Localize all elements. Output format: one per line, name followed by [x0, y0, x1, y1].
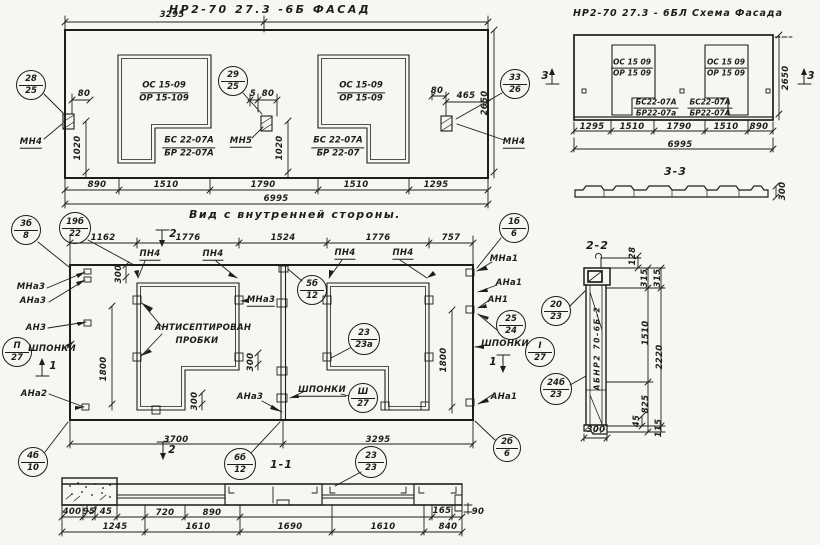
dim-sec22-825: 825: [642, 395, 651, 414]
dim-sec11-840: 840: [439, 523, 458, 532]
dim-fasad-80a: 80: [78, 90, 90, 99]
label-mn4-right: МН4: [503, 138, 525, 149]
frac-bottom: ОР 15-09: [339, 93, 383, 104]
dim-vid-1800-left: 1800: [100, 357, 109, 382]
dim-fasad-1020a: 1020: [74, 136, 83, 161]
callout-bottom: 27: [3, 353, 31, 363]
label-an1: АН1: [488, 296, 509, 305]
frac-bottom: БР 22-07: [317, 148, 360, 159]
dim-vid-300c: 300: [191, 392, 200, 411]
callout-33-26: 3326: [500, 69, 530, 99]
label-pn4-c: ПН4: [334, 249, 355, 260]
dim-fasad-1020b: 1020: [276, 136, 285, 161]
frac-top: ОС 15-09: [337, 80, 385, 93]
callout-top: 20: [544, 301, 568, 312]
dim-sec11-45: 45: [100, 508, 112, 517]
label-shponki-left: ШПОНКИ: [28, 345, 76, 354]
callout-bottom: 25: [17, 86, 45, 96]
section-mark-3-right: 3: [807, 71, 815, 82]
frac-top: БС 22-07А: [162, 135, 215, 148]
dim-sec33-300: 300: [779, 182, 788, 201]
dim-sec11-1690: 1690: [278, 523, 303, 532]
callout-bottom: 12: [298, 291, 326, 301]
mark-schema-w2-bs-br: БС22-07АБР22-07А: [687, 98, 732, 119]
frac-top: ОС 15-09: [140, 80, 188, 93]
dim-sec22-45: 45: [633, 415, 642, 427]
callout-bottom: 8: [12, 231, 40, 241]
callout-iii-27: Ш27: [348, 383, 378, 413]
title-section-2-2: 2-2: [586, 240, 609, 251]
callout-bottom: 25: [219, 82, 247, 92]
dim-fasad-1510b: 1510: [344, 181, 369, 190]
frac-bottom: ОР 15 09: [707, 69, 745, 78]
dim-sec11-165: 165: [433, 507, 452, 516]
dim-sec22-115: 115: [655, 419, 664, 438]
callout-25-24: 2524: [496, 310, 526, 340]
dim-schema-6995: 6995: [668, 141, 693, 150]
dim-vid-1776a: 1776: [176, 234, 201, 243]
dim-vid-300a: 300: [115, 265, 124, 284]
dim-sec11-890: 890: [203, 509, 222, 518]
section-mark-3-left: 3: [541, 71, 549, 82]
title-section-1-1: 1-1: [270, 459, 293, 470]
dim-vid-3295: 3295: [366, 436, 391, 445]
label-ana3-left: АНа3: [20, 297, 47, 306]
callout-24b-23: 24б23: [540, 373, 572, 405]
dim-sec11-720: 720: [156, 509, 175, 518]
frac-bottom: БР22-07а: [636, 109, 676, 118]
dim-sec22-1510: 1510: [642, 321, 651, 346]
dim-sec11-1610b: 1610: [371, 523, 396, 532]
callout-top: I: [528, 342, 552, 353]
label-pn4-d: ПН4: [392, 249, 413, 260]
callout-bottom: 12: [225, 465, 255, 475]
callout-top: 29: [221, 71, 245, 82]
callout-bottom: 23: [541, 390, 571, 400]
mark-window2-os-or: ОС 15-09ОР 15-09: [337, 80, 385, 103]
callout-bottom: 27: [349, 399, 377, 409]
dim-fasad-6995: 6995: [264, 195, 289, 204]
frac-bottom: ОР 15-109: [139, 93, 189, 104]
callout-top: 5б: [300, 280, 324, 291]
callout-29-25: 2925: [218, 66, 248, 96]
dim-fasad-1790: 1790: [251, 181, 276, 190]
dim-sec22-2220: 2220: [656, 345, 665, 370]
title-facade-schema: НР2-70 27.3 - 6БЛ Схема Фасада: [562, 9, 794, 19]
dim-fasad-5: 5: [250, 90, 256, 99]
callout-top: 23: [351, 329, 377, 340]
callout-bottom: 23а: [349, 340, 379, 350]
label-antiseptirovan: АНТИСЕПТИРОВАН: [155, 324, 252, 333]
callout-6b-12: 6б12: [224, 448, 256, 480]
dim-fasad-80b: 80: [262, 90, 274, 99]
callout-bottom: 24: [497, 326, 525, 336]
callout-bottom: 10: [19, 463, 47, 473]
dim-fasad-465: 465: [457, 92, 476, 101]
section-mark-1-right: 1: [489, 357, 497, 368]
dim-vid-1800-right: 1800: [440, 348, 449, 373]
label-an3: АН3: [26, 324, 47, 333]
label-shponki-mid: ШПОНКИ: [298, 386, 346, 397]
callout-bottom: 6: [494, 449, 520, 459]
dim-fasad-2650: 2650: [481, 91, 490, 116]
dim-fasad-80c: 80: [431, 87, 443, 96]
callout-bottom: 23: [356, 463, 386, 473]
label-ana3-mid: АНа3: [237, 393, 264, 402]
dim-vid-1524: 1524: [271, 234, 296, 243]
section-mark-2-bottom: 2: [168, 445, 176, 456]
label-mn5: МН5: [230, 137, 252, 148]
callout-top: Ш: [351, 388, 375, 399]
callout-ii-27: П27: [2, 337, 32, 367]
mark-window1-bs-br: БС 22-07АБР 22-07А: [162, 135, 215, 158]
stamp-abnr2-70-6b-2: АБНР2 70-6Б-2: [593, 306, 601, 391]
dim-vid-300b: 300: [247, 353, 256, 372]
callout-23-23: 2323: [355, 446, 387, 478]
dim-schema-1790: 1790: [667, 123, 692, 132]
title-inner-view: Вид с внутренней стороны.: [180, 209, 410, 220]
dim-vid-757: 757: [442, 234, 461, 243]
label-mna3-mid: МНа3: [247, 296, 275, 307]
callout-top: 19б: [62, 218, 88, 229]
frac-top: БС 22-07А: [311, 135, 364, 148]
callout-23-23a: 2323а: [348, 323, 380, 355]
dim-schema-2650: 2650: [782, 66, 791, 91]
callout-top: 33: [503, 74, 527, 85]
label-ana2: АНа2: [21, 390, 48, 399]
callout-5b-12: 5б12: [297, 275, 327, 305]
callout-19b-22: 19б22: [59, 212, 91, 244]
callout-bottom: 27: [526, 353, 554, 363]
mark-schema-w1-os-or: ОС 15 09ОР 15 09: [611, 58, 653, 79]
callout-2b-6: 2б6: [493, 434, 521, 462]
label-mn4-left: МН4: [20, 138, 42, 149]
callout-bottom: 26: [501, 85, 529, 95]
frac-bottom: БР22-07А: [689, 109, 730, 118]
dim-vid-1776b: 1776: [366, 234, 391, 243]
callout-20-23: 2023: [541, 296, 571, 326]
section-mark-2-top: 2: [169, 229, 177, 240]
label-ana1-bottom: АНа1: [491, 393, 518, 402]
title-facade: НР2-70 27.3 -6Б ФАСАД: [150, 4, 390, 15]
callout-top: П: [5, 342, 29, 353]
dim-fasad-890: 890: [88, 181, 107, 190]
dim-fasad-1295: 1295: [424, 181, 449, 190]
blueprint-sheet: НР2-70 27.3 -6Б ФАСАД НР2-70 27.3 - 6БЛ …: [0, 0, 820, 545]
section-mark-1-left: 1: [49, 361, 57, 372]
d im-schema-890: 890: [750, 123, 769, 132]
label-pn4-b: ПН4: [202, 250, 223, 261]
callout-top: 28: [19, 75, 43, 86]
dim-schema-1295: 1295: [580, 123, 605, 132]
mark-schema-w2-os-or: ОС 15 09ОР 15 09: [705, 58, 747, 79]
label-mna1: МНа1: [490, 255, 518, 264]
label-shponki-right: ШПОНКИ: [481, 340, 529, 349]
dim-sec22-300: 300: [587, 426, 606, 435]
callout-3b-8: 3б8: [11, 215, 41, 245]
callout-bottom: 23: [542, 312, 570, 322]
label-mna3-left: МНа3: [17, 283, 45, 292]
label-probki: ПРОБКИ: [176, 337, 219, 346]
mark-window2-bs-br: БС 22-07АБР 22-07: [311, 135, 364, 158]
dim-sec22-128: 128: [629, 247, 638, 266]
callout-top: 4б: [21, 452, 45, 463]
dim-sec22-315b: 315: [654, 269, 663, 288]
callout-top: 23: [358, 452, 384, 463]
frac-bottom: ОР 15 09: [613, 69, 651, 78]
callout-top: 1б: [502, 218, 526, 229]
callout-bottom: 6: [500, 229, 528, 239]
callout-bottom: 22: [60, 229, 90, 239]
dim-fasad-3295: 3295: [160, 11, 185, 20]
title-section-3-3: 3-3: [664, 166, 687, 177]
label-ana1-top: АНа1: [496, 279, 523, 288]
callout-top: 2б: [496, 438, 518, 449]
frac-top: БС22-07А: [633, 98, 678, 109]
dim-sec22-315a: 315: [641, 269, 650, 288]
callout-top: 6б: [227, 454, 253, 465]
callout-top: 24б: [543, 379, 569, 390]
dim-vid-3700: 3700: [164, 436, 189, 445]
dim-sec11-95: 95: [83, 508, 95, 517]
callout-i-27: I27: [525, 337, 555, 367]
dim-vid-1162: 1162: [91, 234, 116, 243]
frac-top: ОС 15 09: [611, 58, 653, 69]
frac-bottom: БР 22-07А: [164, 148, 213, 159]
callout-top: 25: [499, 315, 523, 326]
mark-window1-os-or: ОС 15-09ОР 15-109: [139, 80, 189, 103]
label-pn4-a: ПН4: [139, 250, 160, 261]
dim-sec11-1610a: 1610: [186, 523, 211, 532]
callout-1b-6: 1б6: [499, 213, 529, 243]
mark-schema-w1-bs-br: БС22-07АБР22-07а: [633, 98, 678, 119]
callout-top: 3б: [14, 220, 38, 231]
frac-top: ОС 15 09: [705, 58, 747, 69]
dim-sec11-90: 90: [472, 508, 484, 517]
dim-sec11-400: 400: [63, 508, 82, 517]
dim-fasad-1510a: 1510: [154, 181, 179, 190]
callout-28-25: 2825: [16, 70, 46, 100]
callout-4b-10: 4б10: [18, 447, 48, 477]
dim-schema-1510b: 1510: [714, 123, 739, 132]
dim-sec11-1245: 1245: [103, 523, 128, 532]
frac-top: БС22-07А: [687, 98, 732, 109]
dim-schema-1510a: 1510: [620, 123, 645, 132]
